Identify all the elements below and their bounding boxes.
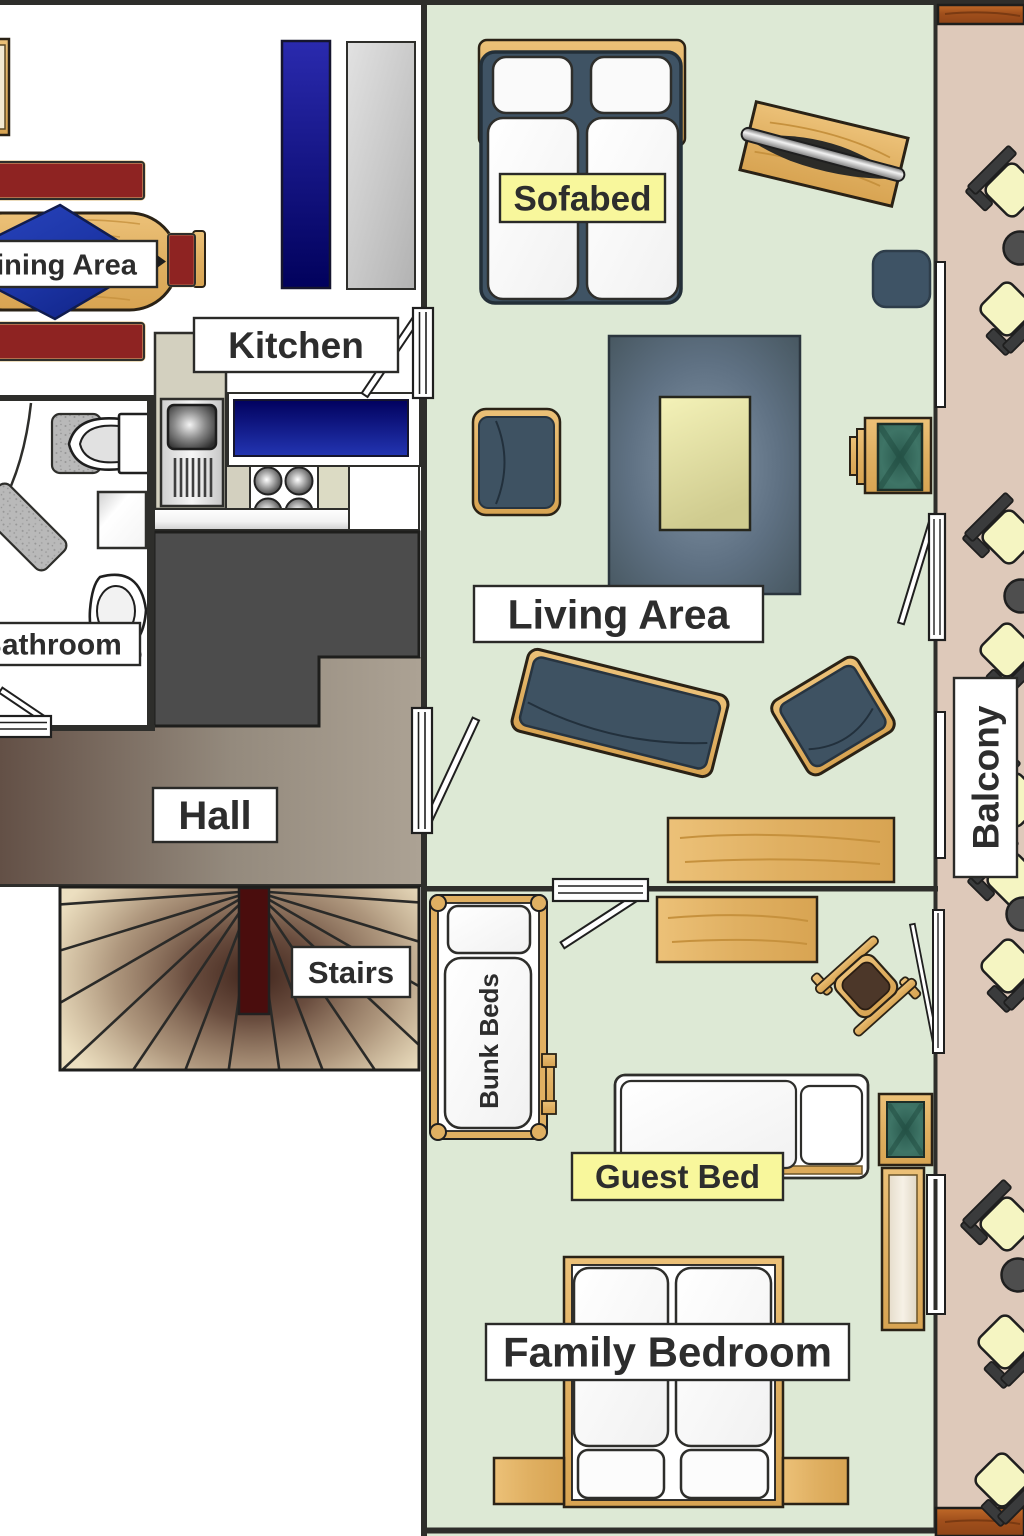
svg-text:Sofabed: Sofabed — [513, 179, 651, 218]
svg-text:Stairs: Stairs — [308, 955, 394, 990]
svg-text:Dining Area: Dining Area — [0, 250, 138, 282]
svg-text:Family Bedroom: Family Bedroom — [503, 1329, 832, 1376]
svg-text:Bunk Beds: Bunk Beds — [474, 973, 504, 1109]
svg-text:Guest Bed: Guest Bed — [595, 1158, 760, 1195]
svg-text:Hall: Hall — [178, 794, 251, 838]
svg-text:Balcony: Balcony — [966, 705, 1007, 849]
svg-text:Kitchen: Kitchen — [228, 325, 364, 366]
svg-text:Living Area: Living Area — [508, 591, 731, 637]
svg-text:Bathroom: Bathroom — [0, 629, 122, 662]
